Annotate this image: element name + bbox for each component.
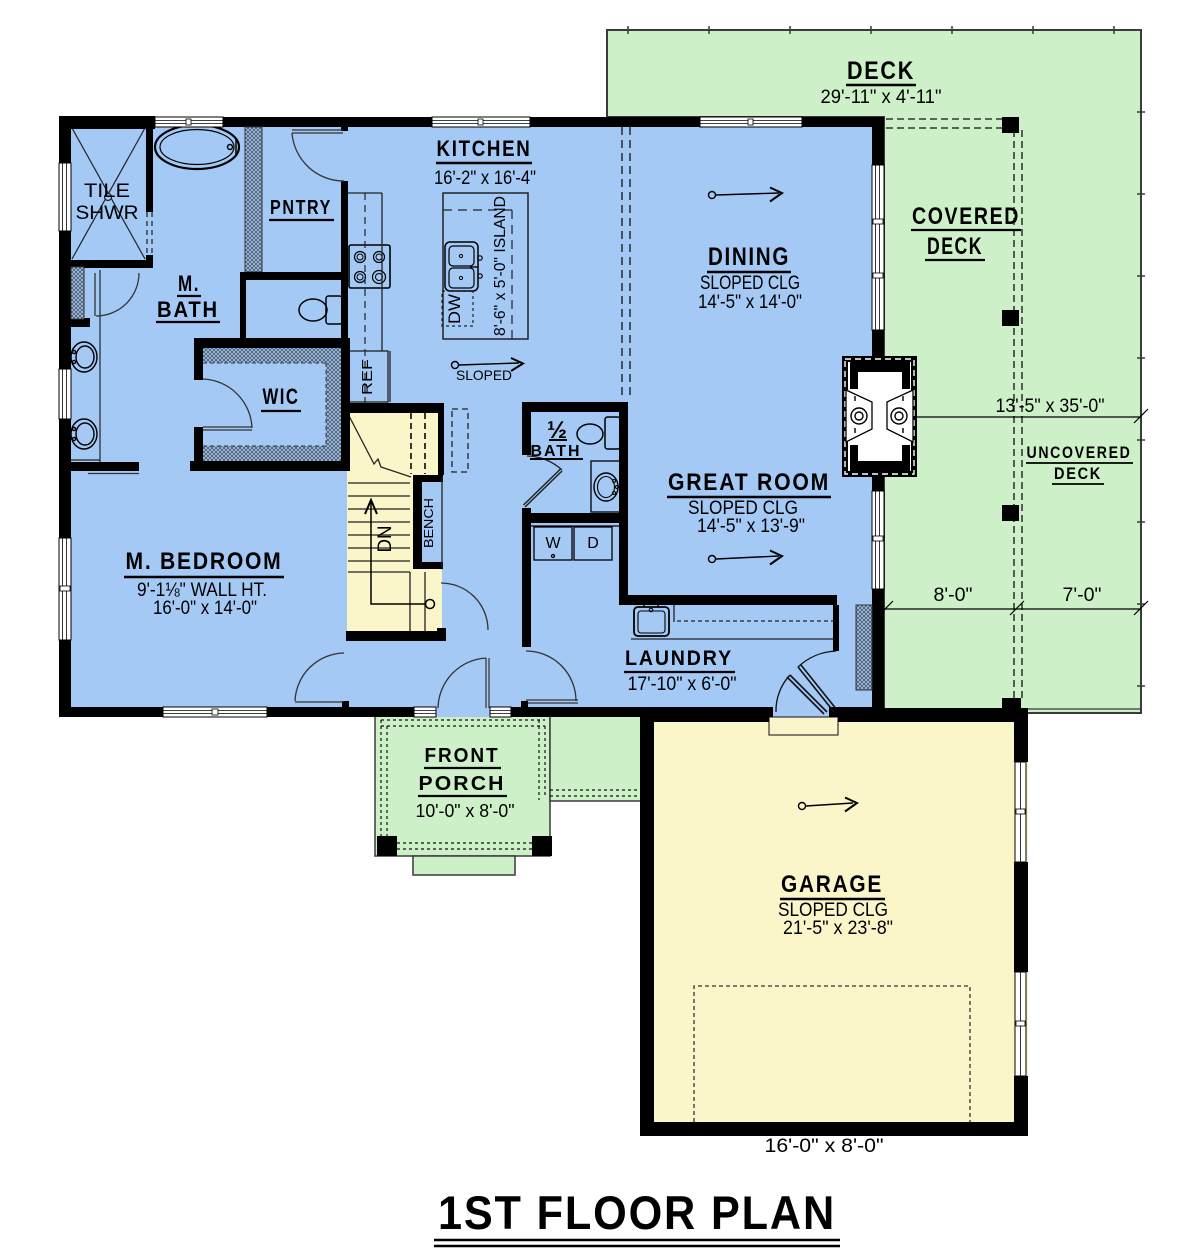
- svg-text:GREAT ROOM: GREAT ROOM: [668, 469, 830, 496]
- svg-text:DINING: DINING: [708, 243, 790, 271]
- svg-text:17'-10" x 6'-0": 17'-10" x 6'-0": [628, 674, 737, 695]
- svg-text:PNTRY: PNTRY: [270, 197, 332, 219]
- svg-text:SLOPED: SLOPED: [456, 367, 512, 383]
- svg-text:BATH: BATH: [531, 443, 582, 460]
- svg-text:PORCH: PORCH: [419, 773, 506, 795]
- svg-text:1ST FLOOR PLAN: 1ST FLOOR PLAN: [438, 1186, 836, 1239]
- svg-text:16'-0" x 14'-0": 16'-0" x 14'-0": [153, 598, 257, 619]
- svg-text:FRONT: FRONT: [425, 745, 500, 767]
- svg-text:8'-6" x 5'-0" ISLAND: 8'-6" x 5'-0" ISLAND: [492, 196, 509, 336]
- svg-text:W: W: [545, 535, 561, 552]
- svg-text:16'-0" x 8'-0": 16'-0" x 8'-0": [765, 1136, 884, 1157]
- svg-text:BATH: BATH: [157, 297, 219, 322]
- svg-text:M. BEDROOM: M. BEDROOM: [126, 548, 283, 575]
- svg-text:REF: REF: [359, 359, 376, 395]
- svg-text:14'-5" x 13'-9": 14'-5" x 13'-9": [697, 516, 805, 537]
- svg-text:UNCOVERED: UNCOVERED: [1027, 443, 1132, 462]
- svg-text:LAUNDRY: LAUNDRY: [625, 647, 733, 670]
- svg-text:DECK: DECK: [1054, 464, 1102, 483]
- svg-text:WIC: WIC: [263, 384, 300, 409]
- svg-text:BENCH: BENCH: [421, 498, 436, 548]
- svg-text:GARAGE: GARAGE: [781, 871, 883, 898]
- svg-text:DECK: DECK: [847, 57, 915, 85]
- svg-text:14'-5" x 14'-0": 14'-5" x 14'-0": [698, 292, 802, 313]
- svg-text:10'-0" x 8'-0": 10'-0" x 8'-0": [416, 801, 515, 821]
- svg-text:DN: DN: [375, 526, 396, 553]
- svg-text:D: D: [587, 535, 599, 552]
- svg-text:KITCHEN: KITCHEN: [437, 136, 532, 161]
- svg-text:21'-5" x 23'-8": 21'-5" x 23'-8": [783, 918, 893, 939]
- svg-text:8'-0": 8'-0": [934, 585, 973, 606]
- svg-text:16'-2" x 16'-4": 16'-2" x 16'-4": [434, 168, 536, 189]
- svg-text:13'-5" x 35'-0": 13'-5" x 35'-0": [996, 396, 1105, 417]
- svg-text:DECK: DECK: [927, 233, 983, 260]
- svg-text:TILE: TILE: [84, 181, 130, 202]
- svg-text:SHWR: SHWR: [76, 203, 139, 224]
- svg-text:29'-11" x 4'-11": 29'-11" x 4'-11": [821, 87, 942, 108]
- svg-text:SLOPED CLG: SLOPED CLG: [700, 273, 800, 294]
- svg-text:7'-0": 7'-0": [1063, 585, 1102, 606]
- svg-text:DW: DW: [445, 294, 464, 324]
- svg-text:M.: M.: [178, 271, 200, 296]
- svg-text:COVERED: COVERED: [912, 203, 1020, 230]
